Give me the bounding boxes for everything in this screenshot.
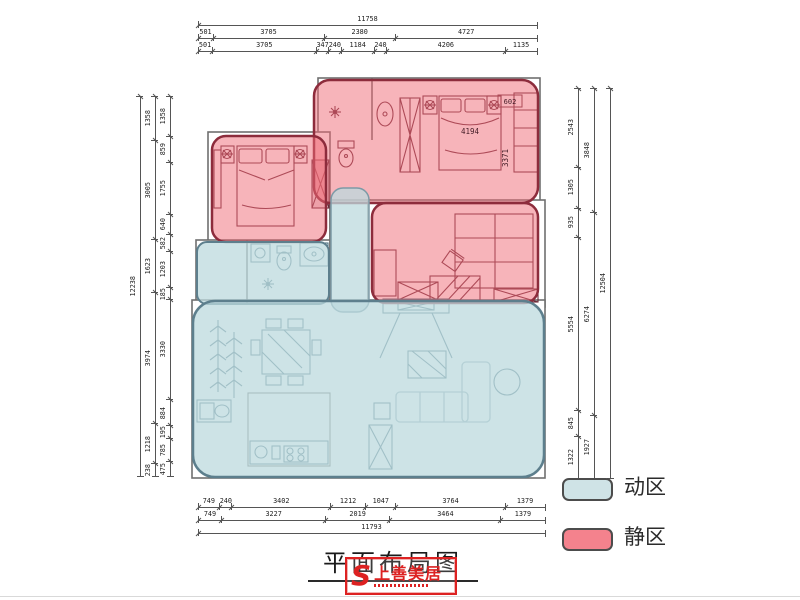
dim-segment: 2019 <box>325 509 390 521</box>
dim-value: 1322 <box>568 449 575 465</box>
dim-value: 640 <box>160 218 167 230</box>
legend-swatch-quiet <box>562 528 613 551</box>
dim-segment: 240 <box>374 40 386 52</box>
dim-segment: 3464 <box>390 509 501 521</box>
dim-value: 2380 <box>352 29 368 36</box>
floor-plan-page: 4194 3371 602 11758 501370523804727 5013… <box>0 0 800 600</box>
dim-value: 240 <box>220 498 232 505</box>
dim-value: 1135 <box>513 42 529 49</box>
dim-col-left-inner: 1358859175564058212031853330884195785475 <box>158 96 171 476</box>
dim-value: 501 <box>199 42 211 49</box>
dim-value: 11793 <box>361 524 381 531</box>
dim-value: 195 <box>160 426 167 438</box>
dim-col-right-total: 12504 <box>598 88 611 478</box>
dim-value: 475 <box>160 463 167 475</box>
dim-segment: 3705 <box>213 27 324 39</box>
dim-value: 845 <box>568 417 575 429</box>
dim-col-left-total: 12238 <box>128 96 141 476</box>
dim-value: 1184 <box>349 42 365 49</box>
dim-segment: 785 <box>158 438 171 462</box>
dim-segment: 1203 <box>158 252 171 288</box>
dim-row-top-total: 11758 <box>198 14 537 26</box>
dim-segment: 11758 <box>198 14 537 26</box>
dim-value: 582 <box>160 237 167 249</box>
label-room-depth: 3371 <box>501 149 510 167</box>
dim-value: 12504 <box>600 273 607 293</box>
dim-segment: 1212 <box>331 496 366 508</box>
dim-value: 240 <box>329 42 341 49</box>
dim-value: 3005 <box>145 182 152 198</box>
dim-segment: 3974 <box>143 293 156 424</box>
label-bed-width: 4194 <box>461 127 480 136</box>
dim-value: 1358 <box>145 110 152 126</box>
legend-label-quiet: 静区 <box>624 527 666 548</box>
dim-row-top-3: 5013705347240118424042061135 <box>198 40 537 52</box>
dim-value: 3764 <box>442 498 458 505</box>
dim-segment: 6274 <box>582 213 595 416</box>
dim-segment: 11793 <box>198 522 545 534</box>
dim-segment: 501 <box>198 27 213 39</box>
dim-value: 935 <box>568 216 575 228</box>
stamp-text: 上善美居 <box>374 565 442 583</box>
stamp-ticks <box>374 584 430 587</box>
dim-segment: 1322 <box>566 437 579 478</box>
dim-value: 785 <box>160 444 167 456</box>
dim-value: 2543 <box>568 119 575 135</box>
footer-divider <box>0 596 800 597</box>
dim-col-right-mid: 384862741927 <box>582 88 595 478</box>
dim-segment: 1358 <box>158 96 171 137</box>
dim-value: 1379 <box>517 498 533 505</box>
dim-value: 1927 <box>584 439 591 455</box>
zone-active-living <box>193 301 544 477</box>
dim-segment: 3764 <box>396 496 505 508</box>
dim-row-top-2: 501370523804727 <box>198 27 537 39</box>
dim-segment: 845 <box>566 410 579 436</box>
dim-segment: 238 <box>143 464 156 476</box>
dim-row-bottom-2: 7493227201934641379 <box>198 509 545 521</box>
dim-value: 1305 <box>568 179 575 195</box>
dim-segment: 3227 <box>222 509 325 521</box>
dim-value: 884 <box>160 407 167 419</box>
dim-segment: 3705 <box>212 40 316 52</box>
dim-value: 1755 <box>160 180 167 196</box>
dim-segment: 1305 <box>566 167 579 208</box>
legend-label-active: 动区 <box>624 477 666 498</box>
dim-value: 1623 <box>145 258 152 274</box>
dim-value: 3227 <box>265 511 281 518</box>
dim-segment: 1927 <box>582 416 595 478</box>
dim-value: 749 <box>203 498 215 505</box>
zone-quiet-study <box>372 203 538 303</box>
dim-segment: 935 <box>566 208 579 237</box>
dim-segment: 1184 <box>341 40 374 52</box>
dim-value: 11758 <box>357 16 377 23</box>
zone-quiet-bedroom-2 <box>212 136 326 242</box>
dim-segment: 347 <box>316 40 328 52</box>
dim-value: 238 <box>145 464 152 476</box>
dim-value: 3330 <box>160 341 167 357</box>
dim-segment: 1379 <box>501 509 545 521</box>
stamp-letter: S <box>351 563 371 588</box>
dim-segment: 859 <box>158 137 171 163</box>
dim-value: 859 <box>160 143 167 155</box>
dim-value: 185 <box>160 288 167 300</box>
dim-value: 4727 <box>458 29 474 36</box>
dim-segment: 1358 <box>143 96 156 141</box>
dim-value: 1047 <box>373 498 389 505</box>
dim-segment: 3848 <box>582 88 595 213</box>
dim-value: 3402 <box>273 498 289 505</box>
watermark-stamp: S 上善美居 <box>345 557 457 595</box>
dim-value: 1379 <box>515 511 531 518</box>
dim-col-left-mid: 13583005162339741218238 <box>143 96 156 476</box>
dim-segment: 5554 <box>566 237 579 410</box>
dim-segment: 2543 <box>566 88 579 167</box>
dim-segment: 640 <box>158 215 171 234</box>
zone-active-bathroom <box>197 242 329 304</box>
dim-value: 3705 <box>260 29 276 36</box>
dim-segment: 501 <box>198 40 212 52</box>
dim-value: 12238 <box>130 276 137 296</box>
dim-segment: 1218 <box>143 424 156 464</box>
dim-segment: 240 <box>329 40 341 52</box>
dim-row-bottom-1: 74924034021212104737641379 <box>198 496 545 508</box>
dim-value: 6274 <box>584 306 591 322</box>
label-602: 602 <box>504 98 517 106</box>
dim-segment: 4727 <box>395 27 537 39</box>
dim-segment: 1755 <box>158 162 171 215</box>
dim-value: 1212 <box>340 498 356 505</box>
dim-value: 3974 <box>145 350 152 366</box>
dim-value: 1218 <box>145 436 152 452</box>
dim-segment: 3330 <box>158 300 171 400</box>
dim-segment: 749 <box>198 509 222 521</box>
dim-segment: 1047 <box>366 496 396 508</box>
dim-value: 3464 <box>437 511 453 518</box>
legend-swatch-active <box>562 478 613 501</box>
dim-col-right-inner: 2543130593555548451322 <box>566 88 579 478</box>
dim-segment: 749 <box>198 496 220 508</box>
dim-value: 3705 <box>256 42 272 49</box>
dim-value: 5554 <box>568 316 575 332</box>
dim-value: 2019 <box>349 511 365 518</box>
dim-segment: 3402 <box>232 496 331 508</box>
dim-row-bottom-total: 11793 <box>198 522 545 534</box>
dim-segment: 4206 <box>387 40 505 52</box>
dim-value: 347 <box>316 42 328 49</box>
dim-value: 240 <box>374 42 386 49</box>
dim-segment: 3005 <box>143 141 156 240</box>
dim-segment: 1623 <box>143 240 156 293</box>
dim-value: 3848 <box>584 142 591 158</box>
dim-segment: 1379 <box>505 496 545 508</box>
dim-segment: 12238 <box>128 96 141 476</box>
zone-overlays <box>193 80 544 477</box>
dim-segment: 884 <box>158 400 171 426</box>
dim-segment: 2380 <box>324 27 395 39</box>
dim-value: 4206 <box>438 42 454 49</box>
dim-value: 501 <box>199 29 211 36</box>
dim-value: 1358 <box>160 108 167 124</box>
dim-segment: 1135 <box>505 40 537 52</box>
dim-value: 1203 <box>160 261 167 277</box>
dim-segment: 12504 <box>598 88 611 478</box>
dim-value: 749 <box>204 511 216 518</box>
dim-segment: 475 <box>158 462 171 476</box>
zone-active-corridor <box>331 188 369 312</box>
